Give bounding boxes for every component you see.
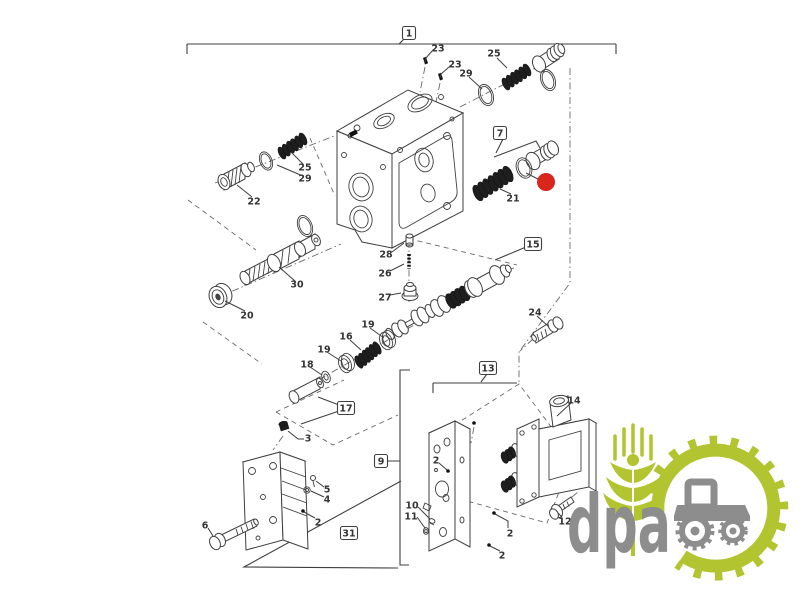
part-spring-25-top	[500, 63, 532, 91]
part-number-label-11: 11	[404, 512, 417, 523]
part-main-valve-body	[337, 90, 463, 248]
part-number-label-22: 22	[247, 197, 260, 208]
section-label-17: 17	[338, 402, 355, 415]
part-number-label-23: 23	[431, 44, 444, 55]
part-number-label-14: 14	[567, 396, 581, 407]
part-ring-19-a	[336, 351, 357, 374]
part-spring-16	[353, 340, 383, 369]
part-number-label-16: 16	[339, 332, 353, 343]
section-label-7: 7	[494, 127, 507, 140]
svg-text:9: 9	[378, 457, 385, 468]
section-label-9: 9	[375, 455, 388, 468]
svg-text:31: 31	[342, 529, 355, 540]
part-pin-28	[406, 234, 413, 247]
highlight-dot	[537, 173, 555, 191]
watermark-text: dpa	[567, 478, 671, 571]
part-number-label-6: 6	[202, 521, 209, 532]
parts-diagram-page: 2323292525292221203028262724191619183542…	[0, 0, 800, 600]
part-oring-29-left	[257, 150, 275, 172]
part-cap-20	[206, 280, 235, 310]
part-number-label-2: 2	[499, 551, 506, 562]
part-plug-27	[402, 283, 418, 301]
section-17-bracket	[301, 397, 339, 424]
tractor-icon	[674, 482, 750, 549]
part-number-label-25: 25	[487, 49, 500, 60]
part-number-label-18: 18	[300, 360, 314, 371]
dpa-watermark: dpa	[567, 425, 784, 576]
part-number-label-19: 19	[361, 320, 374, 331]
part-fitting-22	[216, 161, 256, 191]
section-15-bracket	[495, 247, 526, 260]
section-label-1: 1	[403, 27, 416, 40]
part-number-label-2: 2	[315, 518, 322, 529]
svg-text:15: 15	[526, 240, 539, 251]
part-rod-17	[287, 377, 325, 405]
part-number-label-19: 19	[317, 345, 330, 356]
part-block-lower-left	[243, 452, 308, 550]
part-number-label-2: 2	[433, 456, 440, 467]
part-number-label-3: 3	[305, 434, 312, 445]
section-label-15: 15	[525, 238, 542, 251]
part-number-label-26: 26	[378, 269, 392, 280]
part-plate-13	[423, 421, 470, 551]
section-label-31: 31	[341, 527, 358, 540]
part-number-label-29: 29	[459, 69, 472, 80]
part-number-label-27: 27	[378, 293, 391, 304]
svg-text:17: 17	[339, 404, 352, 415]
part-spool-shaft-15	[384, 263, 512, 341]
part-screw-5	[311, 476, 316, 488]
part-number-label-2: 2	[507, 529, 514, 540]
part-number-label-30: 30	[290, 280, 304, 291]
section-13-bracket	[433, 374, 517, 393]
exploded-parts-diagram: 2323292525292221203028262724191619183542…	[0, 0, 800, 600]
section-9-bracket	[388, 370, 410, 565]
part-number-label-4: 4	[324, 495, 331, 506]
svg-text:1: 1	[406, 29, 413, 40]
section-label-13: 13	[480, 362, 497, 375]
part-spring-25-left	[276, 132, 308, 160]
part-number-label-25: 25	[298, 163, 311, 174]
part-number-label-28: 28	[379, 250, 393, 261]
part-number-label-21: 21	[506, 194, 519, 205]
svg-text:13: 13	[481, 364, 494, 375]
part-spool-30	[238, 233, 322, 286]
part-plug-3	[278, 420, 289, 431]
part-number-label-24: 24	[528, 308, 542, 319]
part-number-label-20: 20	[240, 311, 254, 322]
part-oring-11	[423, 528, 428, 535]
part-number-label-29: 29	[298, 174, 311, 185]
svg-text:7: 7	[497, 129, 504, 140]
part-number-label-10: 10	[405, 501, 419, 512]
